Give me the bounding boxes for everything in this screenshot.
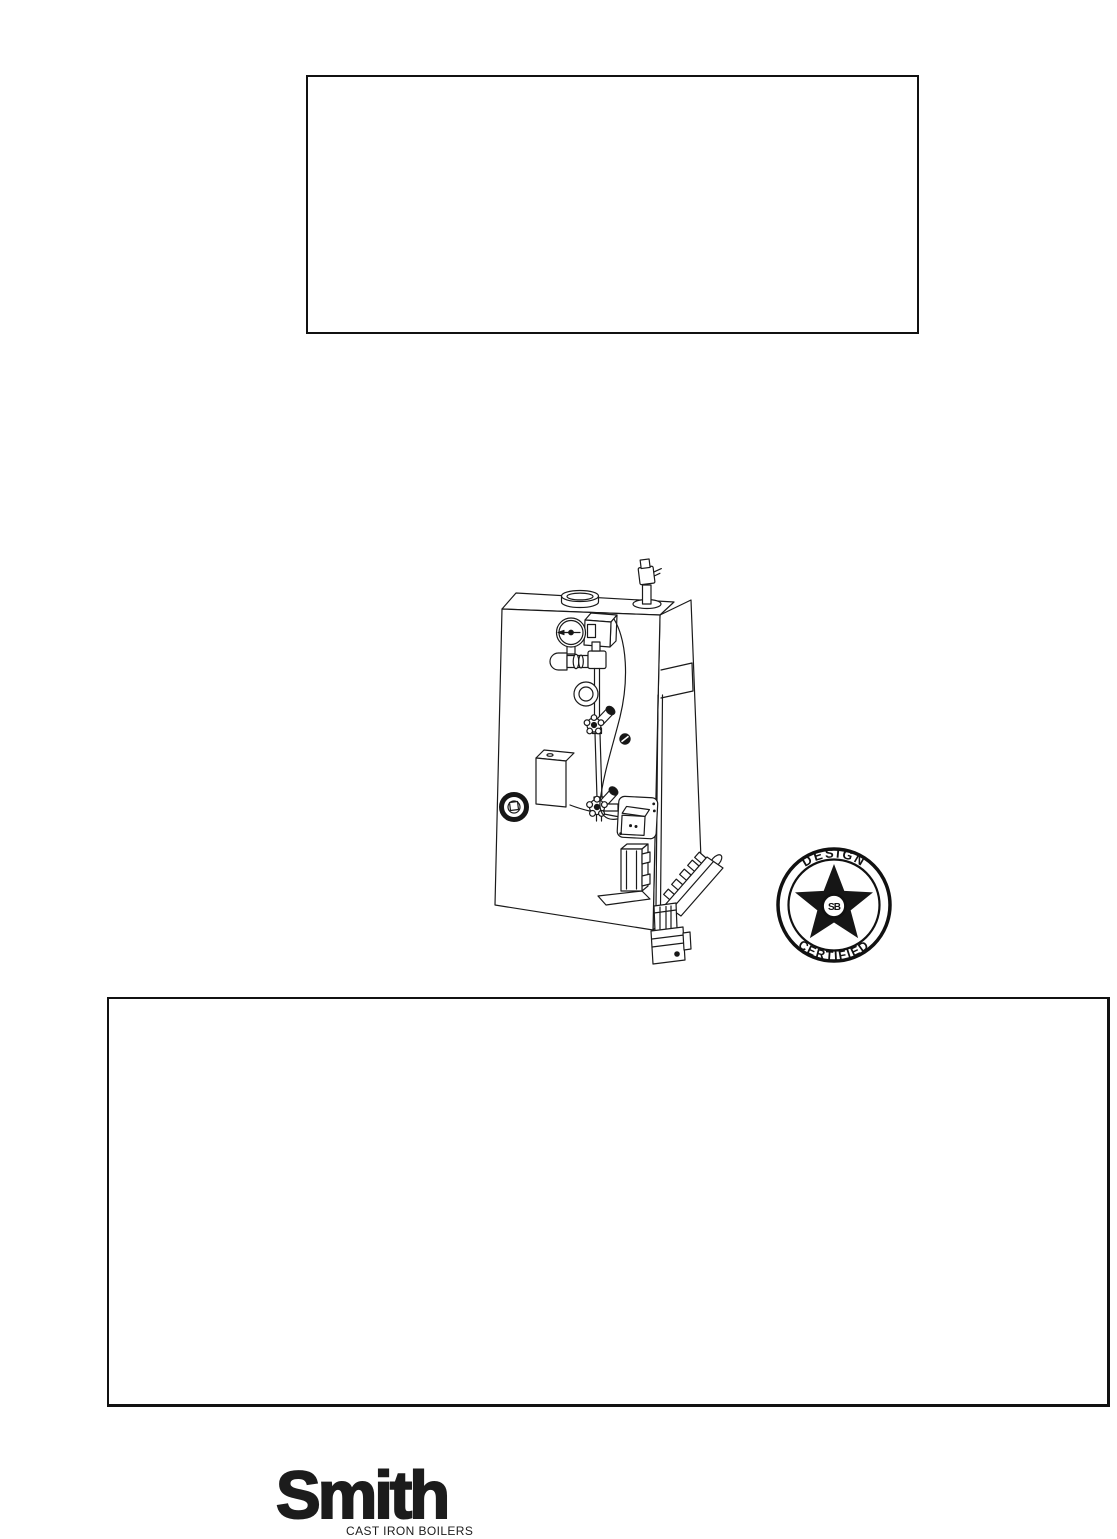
relief-valve	[633, 558, 663, 609]
brand-tagline: CAST IRON BOILERS	[346, 1524, 473, 1538]
ignition-control-box	[617, 796, 658, 839]
seal-monogram: SB	[828, 902, 841, 913]
brand-wordmark: Smith	[276, 1462, 536, 1529]
steam-boiler-illustration	[470, 555, 750, 985]
bottom-notice-box	[107, 997, 1110, 1407]
drain-fitting	[620, 734, 630, 744]
top-notice-box	[306, 75, 919, 334]
manual-cover-page: DESIGN CERTIFIED SB Smith CAST IRON BOIL…	[0, 0, 1117, 1539]
pipe-ring	[574, 682, 598, 706]
design-certified-seal: DESIGN CERTIFIED SB	[774, 845, 894, 965]
observation-port	[502, 795, 527, 820]
smith-logo: Smith CAST IRON BOILERS	[276, 1462, 536, 1529]
